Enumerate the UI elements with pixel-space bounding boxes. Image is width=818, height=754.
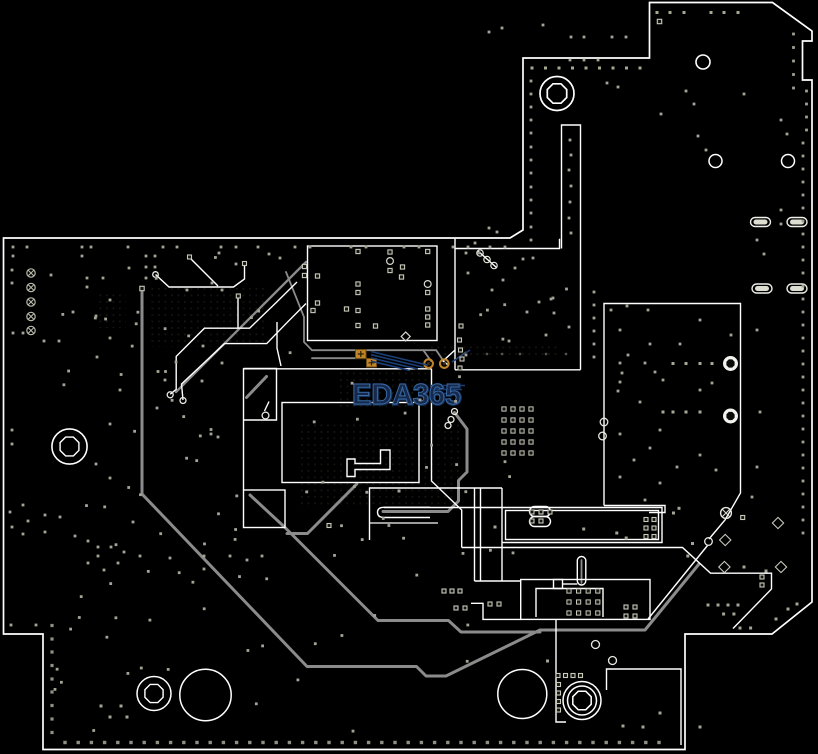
- svg-text:EDA365: EDA365: [352, 379, 461, 411]
